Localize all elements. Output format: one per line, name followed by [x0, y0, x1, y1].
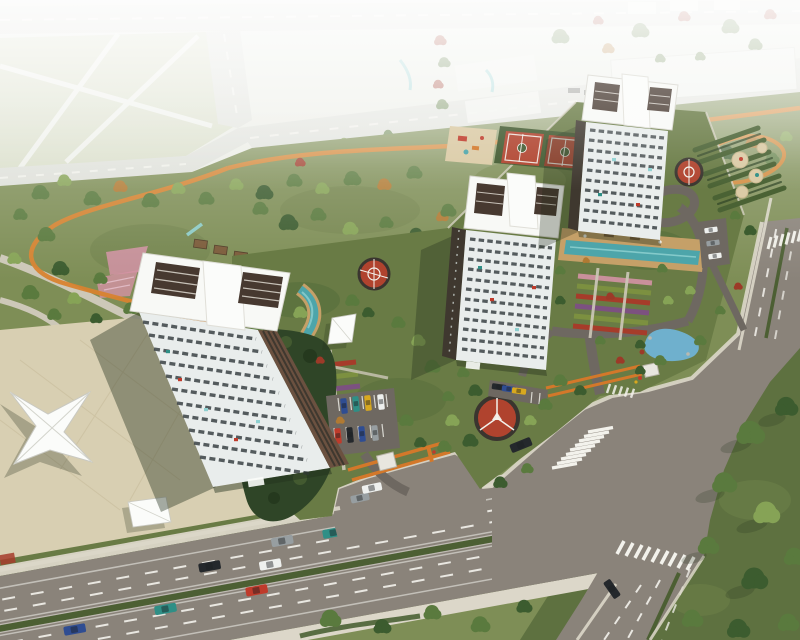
parking-lot-east: [698, 218, 730, 268]
top-veil: [0, 0, 800, 190]
scene-svg: Aerial rendering of a residential comple…: [0, 0, 800, 640]
rooftop-core: [203, 261, 245, 330]
aerial-render: Aerial rendering of a residential comple…: [0, 0, 800, 640]
circular-court-west: [359, 259, 389, 289]
circular-court-south: [476, 397, 518, 439]
entrance-canopy: [466, 361, 481, 369]
